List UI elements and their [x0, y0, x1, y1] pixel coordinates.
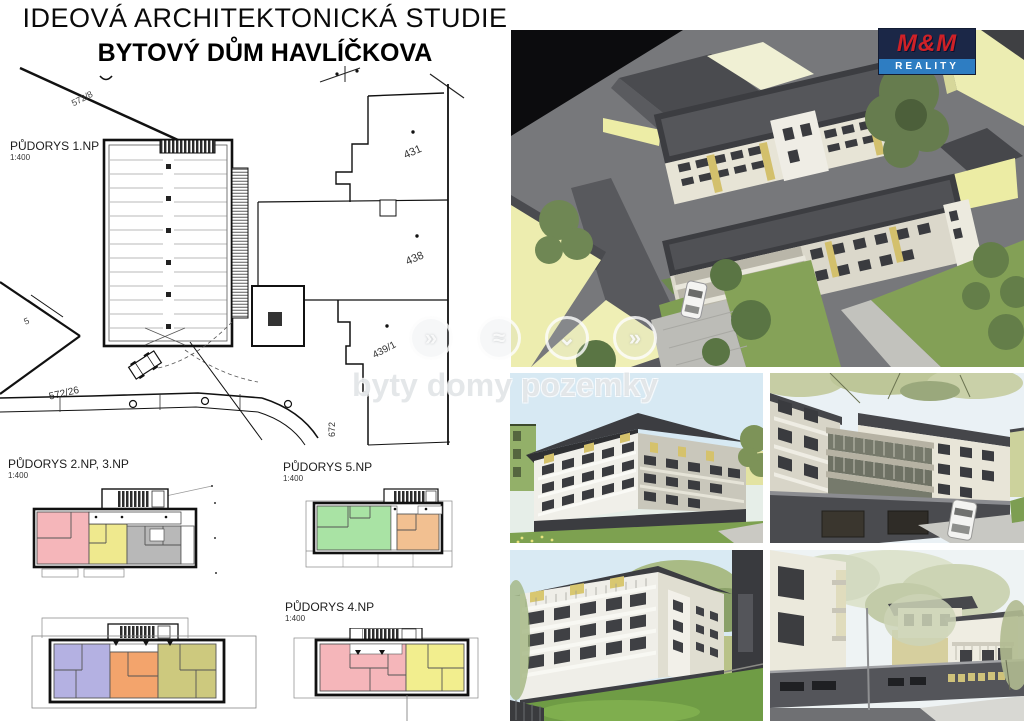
staircase-hatch: [362, 629, 400, 639]
survey-mark: [100, 76, 112, 80]
floor-plan-label-4np: PŮDORYS 4.NP 1:400: [285, 600, 374, 624]
parcel-number: 672: [327, 422, 337, 437]
ramp-hatch: [232, 168, 248, 318]
render-rear-street-view: [770, 550, 1024, 721]
car-symbol: [128, 349, 163, 380]
floor-plan-label-5np: PŮDORYS 5.NP 1:400: [283, 460, 372, 484]
tree: [884, 594, 956, 646]
logo-tagline: REALITY: [879, 59, 975, 74]
site-plan-drawing: 572/8 431 438: [0, 60, 505, 460]
unit-orange: [110, 652, 158, 698]
plan-title: PŮDORYS 5.NP: [283, 460, 372, 474]
plan-title: PŮDORYS 4.NP: [285, 600, 374, 614]
plan-scale: 1:400: [8, 471, 129, 481]
logo-brand-name: M&M: [879, 29, 975, 59]
parcel-number: 572/26: [48, 385, 81, 403]
render-street-view-1: [510, 373, 763, 543]
parcel-number: 439/1: [371, 339, 399, 361]
floor-plan-5np: [298, 487, 463, 573]
page-title: IDEOVÁ ARCHITEKTONICKÁ STUDIE: [0, 3, 530, 34]
floor-plan-lower: [28, 612, 263, 724]
floor-plan-23np: [26, 483, 221, 580]
floor-plan-label-23np: PŮDORYS 2.NP, 3.NP 1:400: [8, 457, 129, 481]
plan-title: PŮDORYS 2.NP, 3.NP: [8, 457, 129, 471]
mm-reality-logo: M&M REALITY: [879, 29, 975, 74]
render-corner-view: [510, 550, 763, 721]
unit-green: [317, 506, 391, 550]
floor-plan-4np: [292, 628, 482, 722]
unit-peach: [397, 514, 439, 550]
plan-scale: 1:400: [285, 614, 374, 624]
unit-olive: [158, 644, 216, 698]
presentation-board: IDEOVÁ ARCHITEKTONICKÁ STUDIE BYTOVÝ DŮM…: [0, 0, 1024, 724]
unit-yellow: [406, 644, 464, 691]
building-footprint: [104, 140, 248, 346]
stairwell-hatch: [160, 140, 215, 153]
unit-yellow: [89, 524, 127, 564]
parcel-number: 431: [402, 143, 424, 161]
render-courtyard-view: [770, 373, 1024, 543]
parcel-number: 438: [404, 249, 426, 267]
render-aerial-view: [511, 30, 1024, 367]
staircase-hatch: [118, 491, 150, 507]
plan-scale: 1:400: [283, 474, 372, 484]
staircase-hatch: [394, 491, 426, 502]
parcel-number: 5: [22, 316, 30, 327]
